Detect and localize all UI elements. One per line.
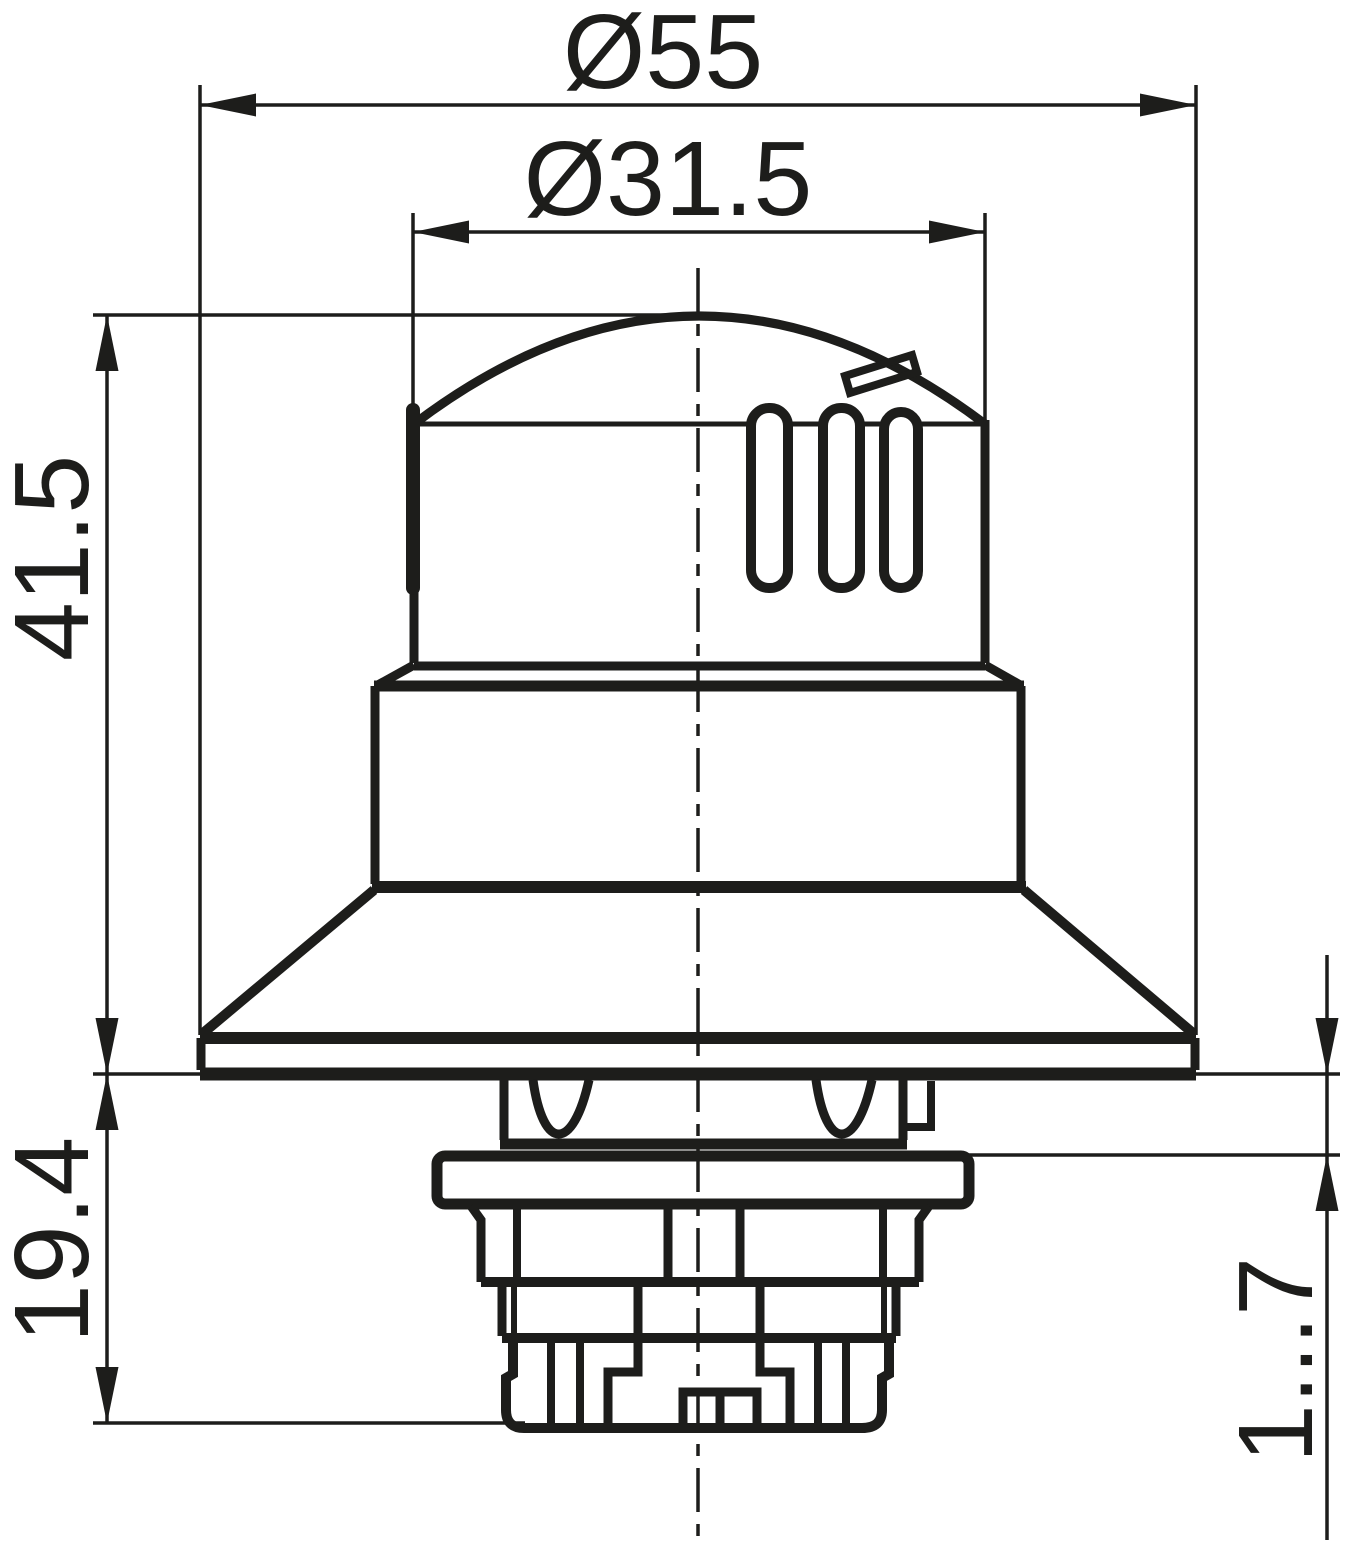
skirt-cone-right — [1024, 890, 1194, 1034]
locking-collar — [437, 1156, 969, 1204]
technical-drawing-canvas: Ø55 Ø31.5 41.5 19.4 1...7 — [0, 0, 1358, 1560]
arrow-outer-dia-left — [200, 94, 256, 117]
arrow-outer-dia-right — [1140, 94, 1196, 117]
label-outer-diameter: Ø55 — [563, 0, 763, 111]
bayonet-step-right — [760, 1340, 790, 1426]
body-upper-side-left — [471, 1206, 481, 1282]
spring-clip-left — [533, 1080, 589, 1134]
skirt-cone-left — [202, 890, 374, 1034]
dimension-lines — [93, 85, 1340, 1540]
arrow-panel-bottom — [1316, 1155, 1339, 1211]
arrow-19-4-bottom — [96, 1367, 119, 1423]
arrow-head-dia-right — [929, 221, 985, 244]
bayonet-step-left — [608, 1340, 638, 1426]
label-head-diameter: Ø31.5 — [524, 120, 813, 238]
grip-slot-2 — [823, 408, 860, 588]
dimension-arrowheads — [96, 94, 1339, 1424]
label-depth-below-panel: 19.4 — [0, 1137, 111, 1343]
spring-clip-right — [816, 1080, 872, 1134]
label-panel-thickness-range: 1...7 — [1217, 1257, 1335, 1463]
body-upper-side-right — [919, 1206, 929, 1282]
bayonet-notch-center — [683, 1392, 757, 1426]
arrow-41-5-bottom — [96, 1018, 119, 1074]
arrow-19-4-top — [96, 1074, 119, 1130]
label-height-above-panel: 41.5 — [0, 455, 111, 661]
arrow-41-5-top — [96, 315, 119, 371]
position-indicator-tab — [845, 355, 917, 393]
drawing-page: Ø55 Ø31.5 41.5 19.4 1...7 — [0, 0, 1358, 1560]
arrow-head-dia-left — [413, 221, 469, 244]
grip-slot-3 — [884, 412, 918, 588]
arrow-panel-top — [1316, 1018, 1339, 1074]
grip-slot-1 — [751, 408, 788, 588]
